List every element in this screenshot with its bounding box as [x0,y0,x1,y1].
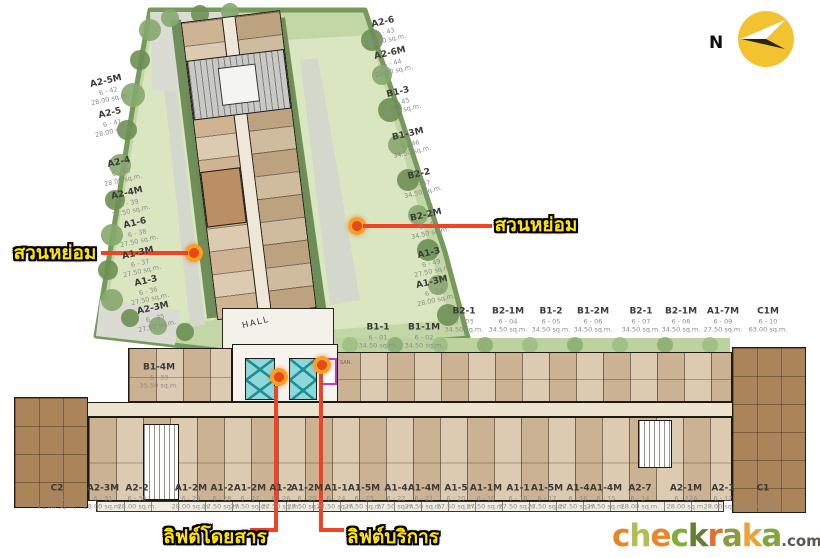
floorplan-stage: HALL SAN. สวนหย่อม สวนหย่อม ลิฟต์โดยสาร … [0,0,820,558]
callout-garden-right: สวนหย่อม [495,210,578,240]
stairwell-west [143,424,179,500]
logo-letter: c [671,518,688,554]
checkraka-logo[interactable]: checkraka.com [612,518,820,554]
callout-lift-service: ลิฟต์บริการ [347,522,439,552]
logo-letter: h [629,518,650,554]
north-letter: N [709,33,723,53]
service-lift-marker [313,356,331,374]
unit-b1-4m-block [128,348,232,402]
balcony-strip [96,501,724,512]
service-core [200,167,247,227]
north-compass: N [703,8,803,72]
stair-core [187,49,292,120]
connector-garden-right [363,224,492,228]
connector-lift-service-h [319,528,344,532]
top-units-row [332,352,732,402]
stairwell-east [638,420,672,468]
logo-letter: a [761,518,781,554]
tree-row-top-units [342,337,718,353]
bottom-units-row [88,417,732,501]
logo-letters: checkraka [612,531,781,550]
connector-lift-passenger-v [274,386,278,532]
callout-lift-passenger: ลิฟต์โดยสาร [163,522,267,552]
san-label: SAN. [340,360,352,366]
logo-letter: r [708,518,722,554]
logo-letter: e [650,518,670,554]
logo-suffix: .com [781,532,820,550]
logo-letter: a [722,518,742,554]
callout-garden-left: สวนหย่อม [14,238,97,268]
unit-c2-block [14,397,88,508]
logo-letter: k [742,518,762,554]
main-corridor [88,402,744,417]
lift-shaft [218,64,261,106]
connector-garden-left [101,251,188,255]
unit-c1-block [732,347,806,513]
connector-lift-service-v [319,374,323,532]
logo-letter: c [612,518,629,554]
passenger-lift-marker [270,368,288,386]
logo-letter: k [688,518,708,554]
